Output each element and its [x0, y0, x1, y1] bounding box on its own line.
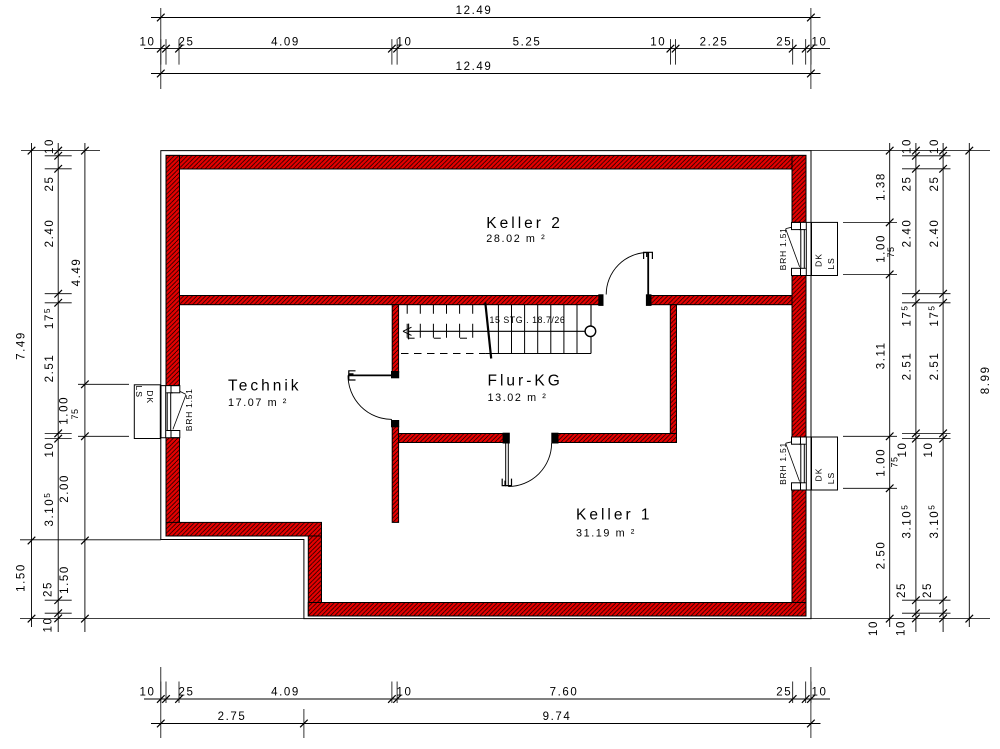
svg-text:25: 25: [776, 36, 792, 48]
svg-text:DK: DK: [814, 253, 824, 267]
svg-text:10: 10: [929, 138, 941, 154]
svg-text:10: 10: [44, 138, 56, 154]
svg-text:12.49: 12.49: [456, 61, 493, 73]
svg-text:10: 10: [902, 138, 914, 154]
svg-text:4.49: 4.49: [71, 258, 83, 287]
svg-text:25: 25: [896, 582, 908, 598]
svg-text:2.40: 2.40: [929, 219, 941, 248]
svg-text:LS: LS: [826, 472, 836, 485]
svg-text:10: 10: [812, 687, 828, 699]
svg-text:17.07 m ²: 17.07 m ²: [228, 397, 288, 409]
svg-text:25: 25: [922, 582, 934, 598]
svg-text:12.49: 12.49: [456, 5, 493, 17]
svg-text:13.02 m ²: 13.02 m ²: [488, 392, 548, 404]
svg-text:1.50: 1.50: [59, 565, 71, 594]
svg-text:7.49: 7.49: [16, 331, 28, 360]
svg-text:2.40: 2.40: [902, 219, 914, 248]
svg-text:Keller 2: Keller 2: [486, 215, 563, 232]
svg-text:LS: LS: [134, 385, 144, 398]
svg-text:2.40: 2.40: [44, 219, 56, 248]
svg-text:2.25: 2.25: [700, 36, 729, 48]
svg-text:31.19 m ²: 31.19 m ²: [576, 528, 636, 540]
svg-text:1.50: 1.50: [16, 563, 28, 592]
svg-text:7.60: 7.60: [550, 687, 579, 699]
svg-text:DK: DK: [145, 390, 155, 404]
svg-text:25: 25: [43, 581, 55, 597]
svg-text:2.51: 2.51: [44, 354, 56, 383]
svg-text:BRH 1.51: BRH 1.51: [778, 227, 788, 270]
svg-text:Keller 1: Keller 1: [576, 507, 653, 524]
svg-text:1.00: 1.00: [875, 448, 887, 477]
svg-text:DK: DK: [814, 468, 824, 482]
svg-text:BRH 1.51: BRH 1.51: [778, 442, 788, 485]
svg-text:9.74: 9.74: [543, 711, 572, 723]
svg-text:Technik: Technik: [228, 378, 302, 395]
svg-text:25: 25: [179, 687, 195, 699]
svg-text:5.25: 5.25: [513, 36, 542, 48]
svg-text:Flur-KG: Flur-KG: [488, 372, 563, 389]
svg-text:2.51: 2.51: [929, 352, 941, 381]
svg-text:10: 10: [397, 36, 413, 48]
svg-text:LS: LS: [826, 257, 836, 270]
svg-text:1.00: 1.00: [59, 396, 71, 425]
svg-text:28.02 m ²: 28.02 m ²: [486, 233, 546, 245]
svg-text:1.38: 1.38: [875, 172, 887, 201]
svg-text:10: 10: [140, 687, 156, 699]
svg-text:75: 75: [886, 246, 896, 257]
svg-text:4.09: 4.09: [271, 36, 300, 48]
svg-text:10: 10: [650, 36, 666, 48]
svg-text:10: 10: [896, 620, 908, 636]
svg-text:10: 10: [812, 36, 828, 48]
svg-text:2.50: 2.50: [875, 541, 887, 570]
svg-text:75: 75: [70, 408, 80, 419]
svg-text:25: 25: [179, 36, 195, 48]
svg-text:10: 10: [868, 620, 880, 636]
svg-text:10: 10: [397, 687, 413, 699]
svg-text:10: 10: [140, 36, 156, 48]
svg-text:15 STG . 18.7/26: 15 STG . 18.7/26: [490, 315, 566, 325]
svg-text:2.75: 2.75: [218, 711, 247, 723]
svg-text:10: 10: [923, 442, 935, 458]
svg-text:3.11: 3.11: [875, 341, 887, 369]
svg-text:10: 10: [897, 442, 909, 458]
svg-text:4.09: 4.09: [271, 687, 300, 699]
svg-text:25: 25: [929, 176, 941, 192]
svg-text:25: 25: [776, 687, 792, 699]
svg-text:10: 10: [44, 442, 56, 458]
svg-text:BRH 1.51: BRH 1.51: [184, 388, 194, 431]
svg-text:2.00: 2.00: [59, 474, 71, 503]
svg-text:8.99: 8.99: [980, 365, 992, 394]
svg-text:25: 25: [44, 176, 56, 192]
svg-text:2.51: 2.51: [902, 352, 914, 381]
svg-text:25: 25: [902, 176, 914, 192]
